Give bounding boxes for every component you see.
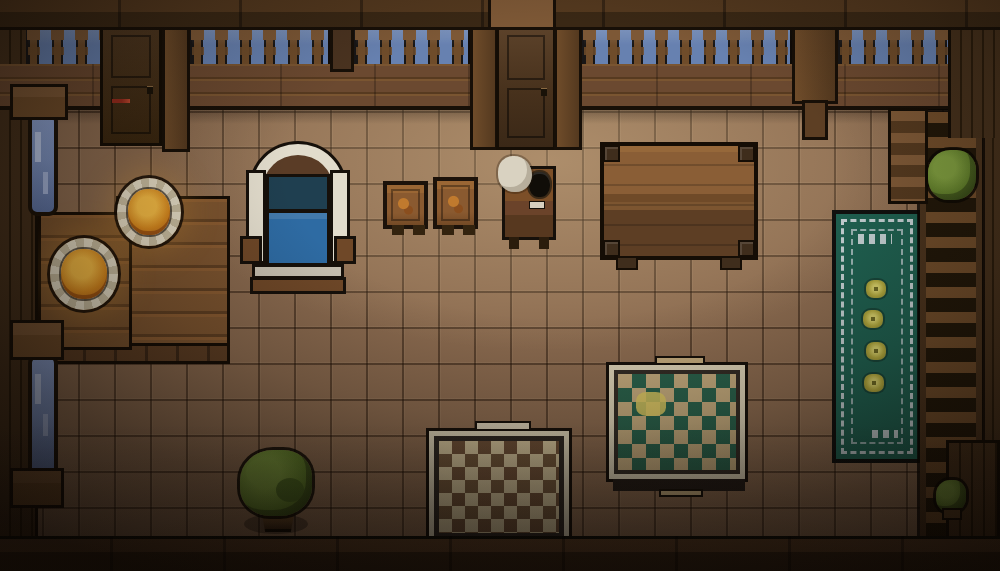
bed-footboard bbox=[250, 277, 346, 294]
shelf-unit[interactable] bbox=[888, 108, 928, 204]
door-red-mark bbox=[112, 99, 130, 103]
table-corner-post bbox=[738, 145, 755, 162]
foliage-shade bbox=[276, 478, 304, 502]
rug-diamond-field bbox=[618, 374, 736, 470]
ceiling-post bbox=[488, 0, 556, 27]
rug-checker-field bbox=[439, 441, 559, 533]
food-plate[interactable] bbox=[50, 238, 118, 310]
food-plate[interactable] bbox=[117, 178, 181, 246]
diamond-pattern-rug[interactable] bbox=[606, 362, 748, 482]
flower-motif bbox=[866, 342, 886, 360]
door-handle bbox=[147, 87, 153, 94]
table-corner-post bbox=[603, 145, 620, 162]
railing-balusters bbox=[26, 28, 102, 68]
steam-puff bbox=[498, 156, 532, 192]
wall-pillar bbox=[554, 24, 582, 150]
railing-balusters bbox=[582, 28, 792, 68]
wall-stool[interactable] bbox=[10, 468, 64, 508]
door-center[interactable] bbox=[496, 24, 556, 150]
railing-balusters bbox=[354, 28, 470, 68]
foliage-highlight bbox=[246, 458, 278, 486]
wall-stool[interactable] bbox=[10, 320, 64, 360]
table-leg bbox=[616, 256, 638, 270]
rug-dash-motif bbox=[872, 430, 898, 438]
wall-pillar bbox=[470, 24, 498, 150]
flower-motif bbox=[863, 310, 883, 328]
bed-side-block bbox=[334, 236, 356, 264]
bed-blanket bbox=[266, 210, 330, 266]
rug-tab bbox=[659, 489, 703, 497]
railing-balusters bbox=[190, 28, 330, 68]
crate[interactable] bbox=[383, 181, 428, 229]
potted-bush[interactable] bbox=[238, 450, 316, 538]
wall-post-foot bbox=[802, 100, 828, 140]
door-left[interactable] bbox=[100, 24, 162, 146]
rug-frame bbox=[434, 436, 564, 538]
railing-balusters bbox=[838, 28, 954, 68]
window-lower-left bbox=[28, 354, 58, 484]
rug-inner-pattern bbox=[851, 229, 903, 444]
stove-burner bbox=[529, 172, 550, 197]
rug-tab bbox=[655, 356, 705, 365]
bed-side-block bbox=[240, 236, 262, 264]
top-wall-beam bbox=[0, 0, 1000, 30]
rug-tab bbox=[475, 421, 531, 431]
wall-post bbox=[792, 24, 838, 104]
window-upper-left bbox=[28, 112, 58, 216]
tavern-room-scene bbox=[0, 0, 1000, 571]
stove-label bbox=[529, 201, 545, 209]
flower-motif bbox=[864, 374, 884, 392]
checkered-rug[interactable] bbox=[426, 428, 572, 546]
table-corner-post bbox=[738, 240, 755, 257]
shelf-plant[interactable] bbox=[928, 150, 976, 200]
railing-post bbox=[330, 26, 354, 72]
small-plant-pot bbox=[942, 508, 962, 520]
stove[interactable] bbox=[498, 156, 560, 256]
crate[interactable] bbox=[433, 177, 478, 229]
rug-dash-motif bbox=[858, 234, 892, 244]
wall-pillar bbox=[162, 24, 190, 152]
door-handle bbox=[541, 89, 547, 96]
hot-food bbox=[128, 189, 170, 235]
wall-ledge bbox=[10, 84, 68, 120]
bed[interactable] bbox=[244, 144, 354, 296]
flower-motif bbox=[866, 280, 886, 298]
table-leg bbox=[720, 256, 742, 270]
wooden-table[interactable] bbox=[600, 142, 758, 260]
hot-food bbox=[61, 249, 107, 299]
rug-frame bbox=[614, 370, 740, 474]
bottom-wall bbox=[0, 536, 1000, 571]
bed-pillow-area bbox=[266, 174, 330, 212]
green-runner-rug[interactable] bbox=[832, 210, 922, 463]
rug-worn-patch bbox=[636, 392, 666, 416]
table-corner-post bbox=[603, 240, 620, 257]
